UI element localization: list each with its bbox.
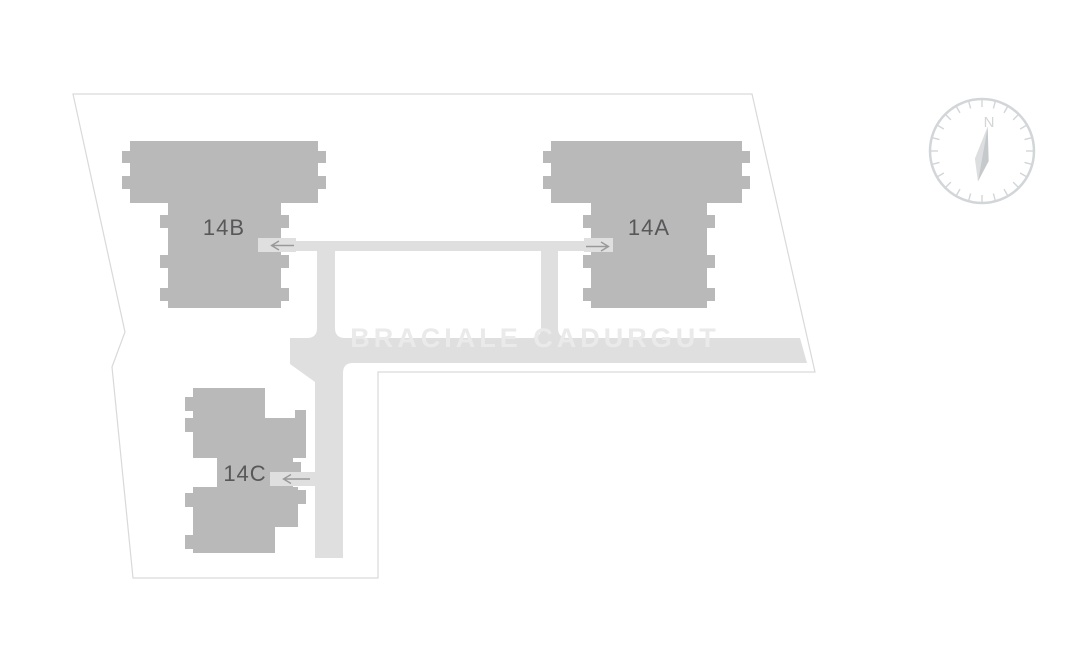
compass-north-label: N [984,114,995,131]
compass-rose: N [930,99,1035,204]
driveway-14a [584,238,613,252]
building-14b-label[interactable]: 14B [203,215,245,240]
compass-needle-icon [971,125,995,183]
road-upper-strip [262,241,610,251]
building-14a-label[interactable]: 14A [628,215,670,240]
street-name-watermark: BRACIALE CADURGUT [350,323,719,353]
site-plan-page: BRACIALE CADURGUT 14B 14A 14C N [0,0,1077,658]
building-14c-label[interactable]: 14C [223,461,266,486]
site-plan-canvas: BRACIALE CADURGUT 14B 14A 14C N [0,0,1077,658]
